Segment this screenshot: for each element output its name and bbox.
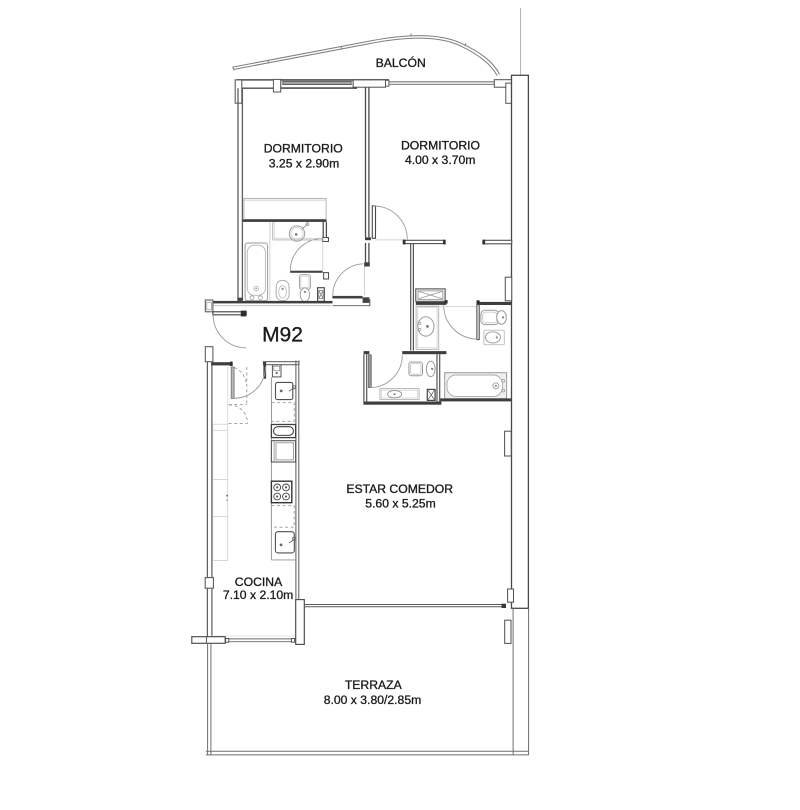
svg-text:DORMITORIO: DORMITORIO [401, 138, 480, 152]
svg-text:8.00 x 3.80/2.85m: 8.00 x 3.80/2.85m [324, 693, 422, 707]
svg-text:4.00 x 3.70m: 4.00 x 3.70m [405, 153, 475, 167]
svg-text:3.25 x 2.90m: 3.25 x 2.90m [269, 156, 339, 170]
svg-text:TERRAZA: TERRAZA [345, 678, 403, 692]
svg-text:M92: M92 [262, 324, 303, 347]
svg-text:ESTAR COMEDOR: ESTAR COMEDOR [346, 482, 453, 496]
svg-text:7.10 x 2.10m: 7.10 x 2.10m [223, 588, 293, 602]
svg-text:BALCÓN: BALCÓN [376, 55, 426, 70]
svg-text:DORMITORIO: DORMITORIO [264, 141, 343, 155]
svg-text:5.60 x 5.25m: 5.60 x 5.25m [365, 496, 435, 510]
